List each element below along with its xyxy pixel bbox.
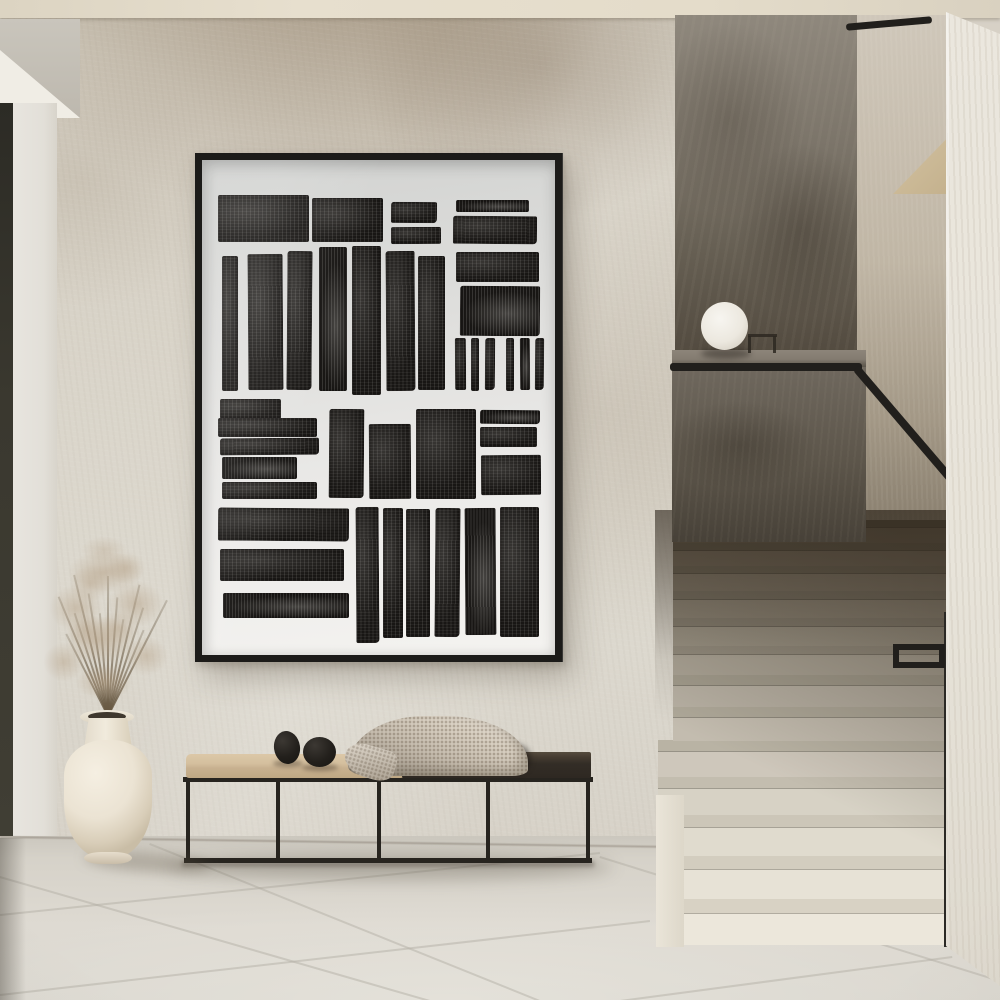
floor-corner-shadow	[0, 838, 26, 1000]
stair-tread	[658, 814, 950, 828]
artwork-ink-block	[329, 409, 364, 498]
stair-tread	[673, 617, 950, 627]
artwork-ink-block	[455, 338, 466, 391]
stair-riser	[658, 869, 950, 899]
artwork-ink-block	[480, 410, 540, 424]
artwork-ink-block	[247, 254, 283, 390]
sphere-lamp	[701, 302, 748, 350]
artwork-ink-block	[312, 198, 383, 243]
stair-riser	[658, 788, 950, 815]
artwork-ink-block	[368, 424, 410, 500]
artwork-ink-block	[386, 251, 416, 391]
artwork-ink-block	[222, 482, 317, 499]
artwork-ink-block	[220, 549, 344, 581]
artwork-frame	[195, 153, 563, 662]
artwork-ink-block	[485, 338, 495, 391]
stair-side-cheek	[656, 795, 684, 947]
artwork-ink-block	[471, 338, 480, 390]
artwork-ink-block	[456, 200, 529, 213]
artwork-ink-block	[352, 246, 382, 395]
stair-tread	[673, 706, 950, 718]
artwork-ink-block	[506, 338, 515, 390]
artwork-canvas	[202, 160, 555, 655]
door-frame-edge	[0, 103, 13, 847]
lamp-stand-leg	[773, 336, 776, 353]
artwork-ink-block	[406, 509, 430, 637]
vase-body	[64, 740, 152, 858]
artwork-ink-block	[453, 216, 538, 244]
artwork-ink-block	[222, 457, 297, 479]
stairwell	[653, 10, 953, 950]
bench	[175, 700, 605, 890]
stair-tread	[658, 776, 950, 789]
stair-tread	[673, 565, 950, 574]
stair-riser	[658, 827, 950, 856]
stair-tread	[658, 898, 950, 914]
stair-parapet-wall	[672, 366, 866, 542]
stair-riser	[673, 599, 950, 618]
artwork-ink-block	[456, 252, 539, 282]
artwork-ink-block	[319, 247, 347, 391]
interior-photo	[0, 0, 1000, 1000]
artwork-ink-block	[459, 285, 540, 335]
stair-tread	[658, 855, 950, 870]
artwork-ink-block	[218, 195, 309, 243]
vase-foot	[84, 852, 132, 864]
artwork-ink-block	[218, 418, 317, 437]
stair-tread	[673, 542, 950, 550]
stair-riser	[673, 550, 950, 567]
artwork-ink-block	[218, 508, 349, 542]
artwork-ink-block	[220, 438, 319, 456]
stair-riser	[673, 717, 950, 741]
stair-riser	[658, 913, 950, 945]
artwork-ink-block	[480, 427, 538, 447]
artwork-ink-block	[390, 227, 441, 244]
artwork-ink-block	[223, 593, 349, 619]
artwork-ink-block	[416, 409, 476, 498]
bench-leg	[186, 781, 190, 863]
artwork-ink-block	[464, 508, 496, 635]
lamp-stand-leg	[748, 336, 751, 353]
stair-tread	[673, 590, 950, 599]
artwork-ink-block	[390, 201, 436, 222]
artwork-ink-block	[418, 256, 445, 390]
artwork-ink-block	[222, 256, 238, 391]
foreground-wall-corner	[946, 0, 1000, 1000]
stair-riser	[658, 751, 950, 776]
wall-light-band	[13, 103, 57, 843]
handrail-bracket	[893, 644, 945, 668]
artwork-ink-block	[355, 506, 379, 642]
stair-tread	[673, 674, 950, 685]
artwork-ink-block	[434, 508, 460, 637]
artwork-ink-block	[520, 338, 530, 391]
bench-leg	[486, 781, 490, 863]
bench-leg	[377, 781, 381, 863]
handrail-horizontal	[670, 363, 862, 371]
artwork-ink-block	[480, 455, 540, 495]
bench-leg	[586, 781, 590, 863]
bench-leg	[276, 781, 280, 863]
bench-bottom-rail	[184, 858, 592, 863]
artwork-ink-block	[287, 251, 313, 390]
artwork-ink-block	[220, 399, 281, 420]
stair-riser	[673, 573, 950, 591]
pebble-object	[303, 737, 336, 767]
stair-tread	[658, 740, 950, 752]
stair-riser	[673, 685, 950, 708]
stair-riser	[673, 626, 950, 646]
artwork-ink-block	[500, 507, 540, 638]
artwork-ink-block	[383, 508, 403, 638]
artwork-ink-block	[535, 338, 544, 391]
